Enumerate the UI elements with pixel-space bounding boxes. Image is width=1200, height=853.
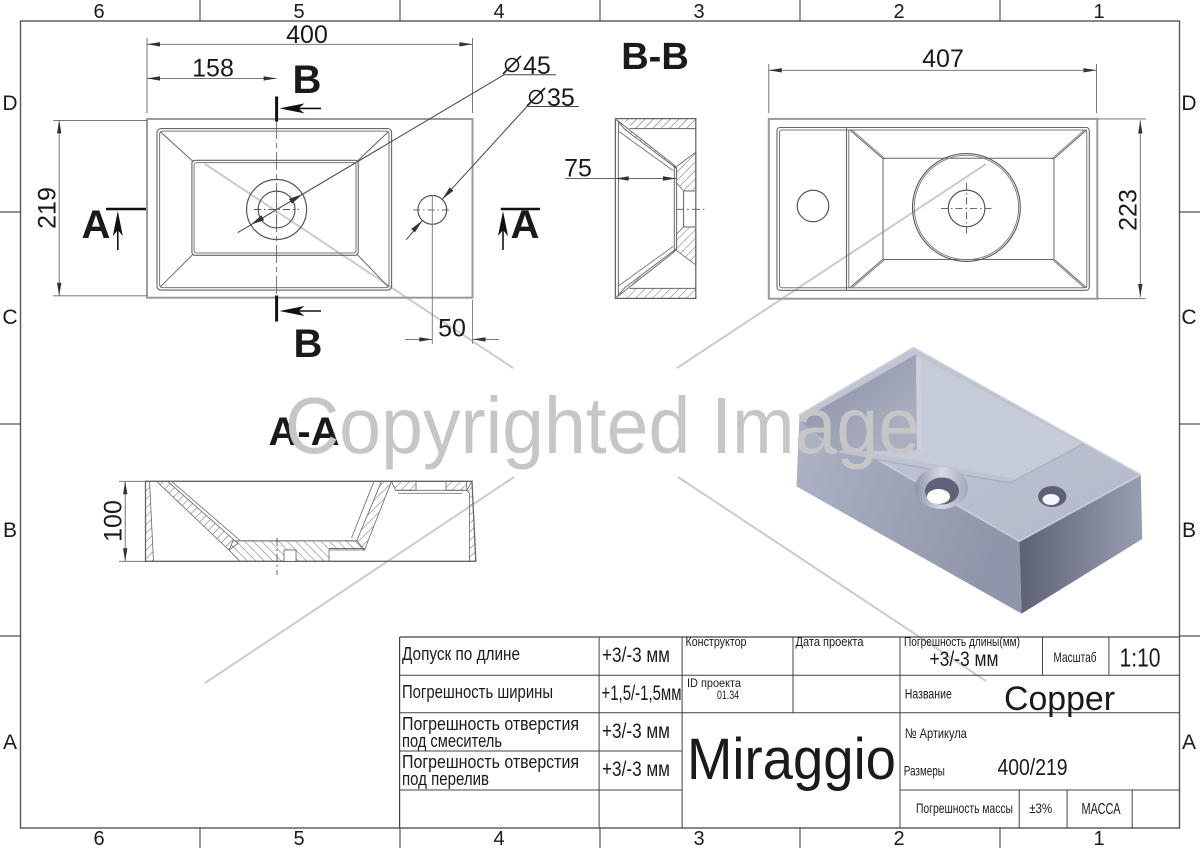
svg-text:C: C <box>2 306 17 329</box>
svg-text:400/219: 400/219 <box>998 754 1068 780</box>
svg-text:1: 1 <box>1093 1 1104 23</box>
svg-text:B: B <box>1182 519 1196 542</box>
svg-text:2: 2 <box>893 828 904 848</box>
svg-text:Погрешность длины(мм): Погрешность длины(мм) <box>904 635 1020 649</box>
svg-text:A: A <box>1182 731 1196 754</box>
svg-text:4: 4 <box>493 1 504 23</box>
svg-text:A: A <box>82 203 111 247</box>
svg-text:Погрешность ширины: Погрешность ширины <box>402 681 553 702</box>
svg-text:Масштаб: Масштаб <box>1054 649 1097 665</box>
svg-text:3: 3 <box>693 828 704 848</box>
svg-text:6: 6 <box>93 828 104 848</box>
svg-text:4: 4 <box>493 828 504 848</box>
svg-text:3: 3 <box>693 1 704 23</box>
svg-text:D: D <box>1181 92 1196 115</box>
svg-text:1:10: 1:10 <box>1120 643 1161 673</box>
svg-text:Copper: Copper <box>1004 680 1115 718</box>
svg-text:под перелив: под перелив <box>402 768 489 789</box>
svg-text:5: 5 <box>293 828 304 848</box>
svg-text:1: 1 <box>1093 828 1104 848</box>
svg-text:Погрешность массы: Погрешность массы <box>916 800 1013 816</box>
svg-text:+3/-3 мм: +3/-3 мм <box>602 644 670 667</box>
svg-text:400: 400 <box>286 21 328 49</box>
svg-text:01.34: 01.34 <box>717 688 739 702</box>
svg-text:+3/-3 мм: +3/-3 мм <box>930 648 999 671</box>
svg-text:A: A <box>3 731 17 754</box>
svg-text:A: A <box>511 203 540 247</box>
svg-text:B: B <box>294 322 323 366</box>
svg-text:45: 45 <box>523 52 551 80</box>
svg-text:+3/-3 мм: +3/-3 мм <box>602 758 670 781</box>
svg-text:+1,5/-1,5мм: +1,5/-1,5мм <box>602 682 682 705</box>
svg-text:№ Артикула: № Артикула <box>905 725 967 741</box>
svg-text:100: 100 <box>100 500 128 542</box>
svg-text:+3/-3 мм: +3/-3 мм <box>602 720 670 743</box>
svg-text:5: 5 <box>293 1 304 23</box>
svg-text:6: 6 <box>93 1 104 23</box>
svg-text:B-B: B-B <box>621 36 689 78</box>
svg-text:Copyrighted Image: Copyrighted Image <box>285 381 920 470</box>
svg-text:C: C <box>1181 306 1196 329</box>
svg-text:219: 219 <box>34 187 62 229</box>
svg-text:50: 50 <box>438 315 466 343</box>
svg-text:35: 35 <box>547 84 575 112</box>
svg-text:Конструктор: Конструктор <box>686 635 747 649</box>
svg-text:Miraggio: Miraggio <box>687 727 896 792</box>
svg-text:Дата проекта: Дата проекта <box>796 635 864 649</box>
svg-text:МАССА: МАССА <box>1082 801 1121 818</box>
svg-text:под смеситель: под смеситель <box>402 730 502 751</box>
svg-text:75: 75 <box>564 155 592 183</box>
svg-text:223: 223 <box>1115 189 1143 231</box>
svg-text:2: 2 <box>893 1 904 23</box>
svg-text:B: B <box>3 519 17 542</box>
svg-text:407: 407 <box>922 45 964 73</box>
svg-text:Название: Название <box>905 686 952 702</box>
svg-text:Размеры: Размеры <box>904 763 945 779</box>
svg-text:B: B <box>293 58 322 102</box>
svg-text:±3%: ±3% <box>1029 800 1052 816</box>
svg-text:158: 158 <box>192 55 234 83</box>
svg-text:D: D <box>2 92 17 115</box>
svg-text:Допуск по длине: Допуск по длине <box>402 643 520 664</box>
